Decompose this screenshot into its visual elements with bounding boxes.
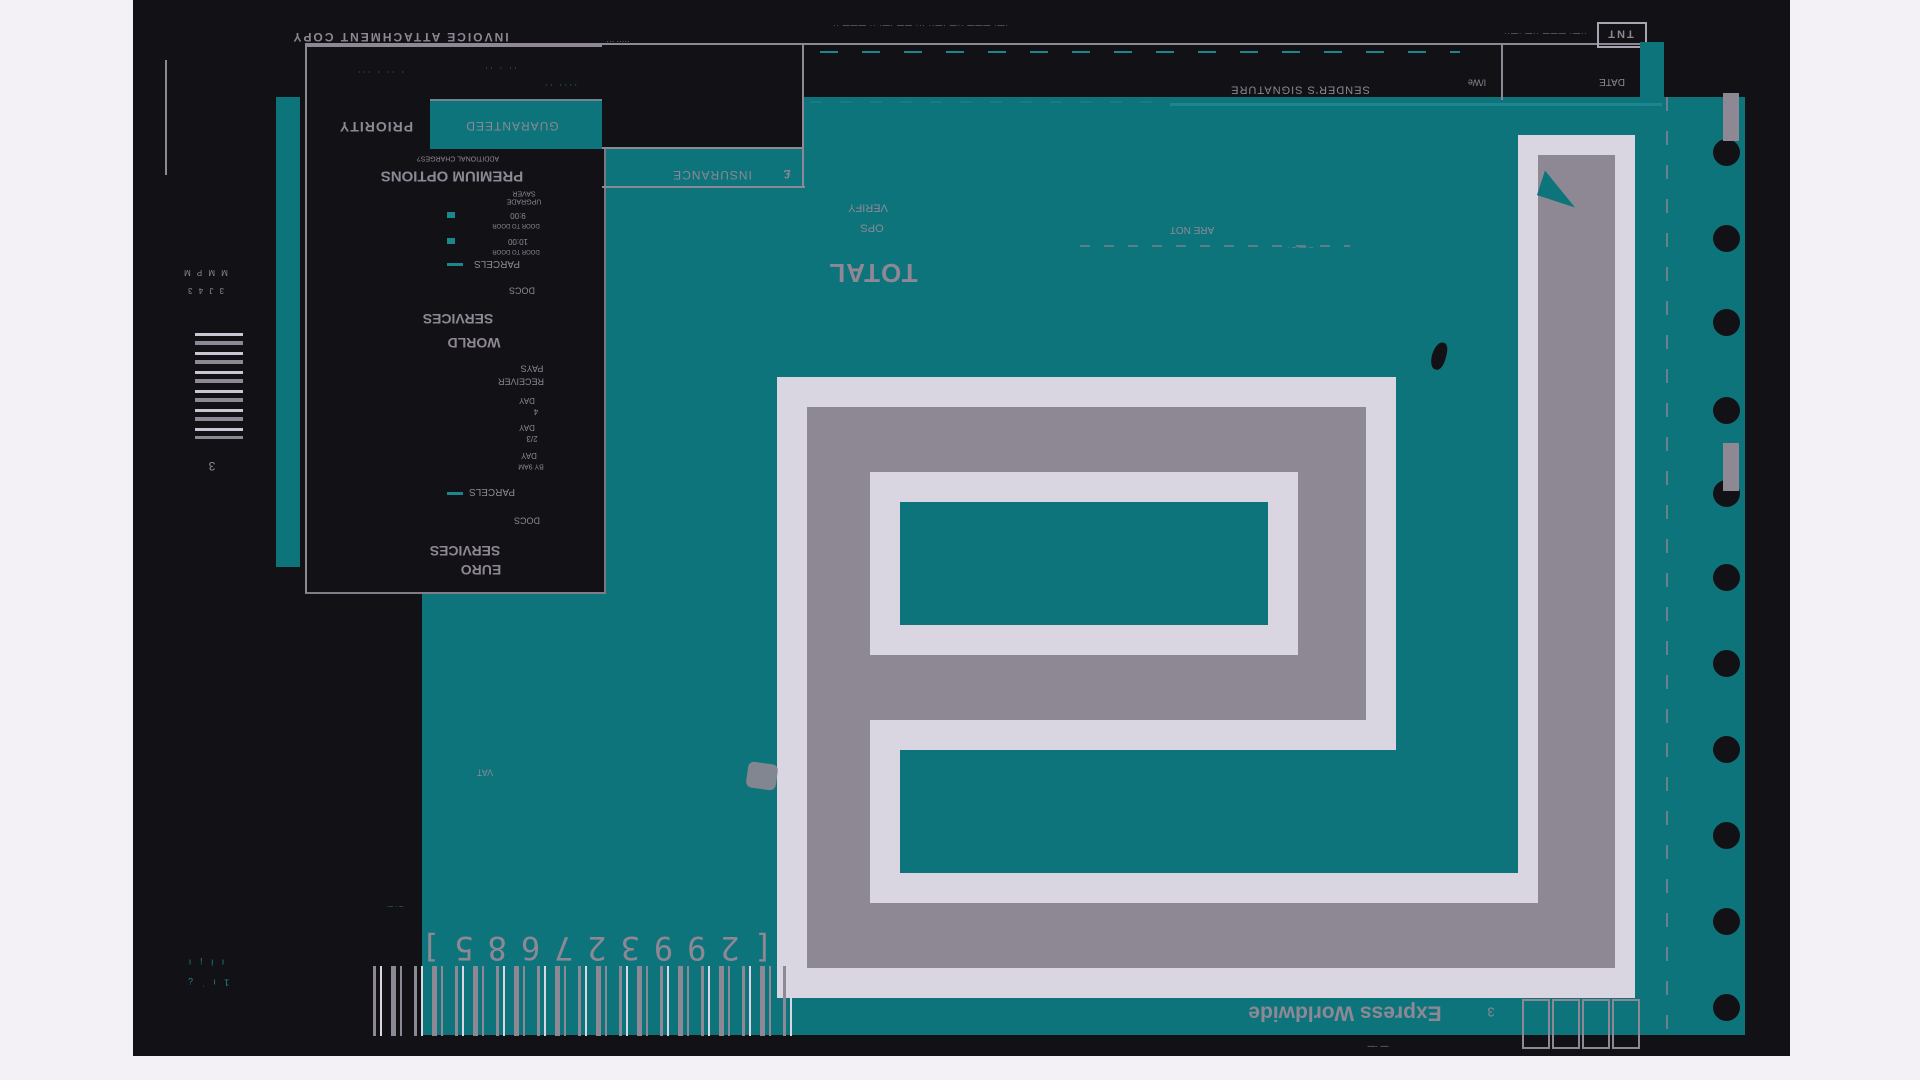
option-1000-door: DOOR TO DOOR — [492, 248, 539, 254]
legend-small-print: ····· ··· — [606, 37, 630, 45]
option-saver: SAVER — [512, 190, 535, 197]
margin-marks-row1: M M P M — [182, 268, 228, 276]
insurance-divider — [802, 45, 804, 188]
punch-hole-6 — [1713, 564, 1740, 591]
dayam-line1: BY 9AM — [518, 463, 544, 470]
watermark-top-stroke-fill — [807, 407, 1366, 472]
express-underline-marks: — ·— — [1368, 1042, 1389, 1050]
tick-mark-3 — [447, 263, 463, 266]
barcode-top-marks: – · –· — [387, 903, 403, 910]
punch-hole-3 — [1713, 309, 1740, 336]
tick-mark-1 — [447, 212, 455, 218]
dayam-line2: DAY — [521, 451, 537, 459]
are-not-small-print: – — – · — [1287, 243, 1313, 251]
header-teal-block — [1640, 42, 1664, 108]
receiver-pays-line1: RECEIVER — [498, 377, 544, 386]
world-docs-label: DOCS — [509, 286, 535, 295]
euro-parcels-label: PARCELS — [469, 486, 515, 496]
ops-verify-line1: OPS — [860, 222, 883, 233]
perforation-rule — [1666, 97, 1668, 1035]
margin-ladder-barcode — [195, 333, 243, 439]
weight-cells-row — [1520, 999, 1644, 1045]
option-1000: 10:00 — [508, 237, 528, 245]
priority-label: PRIORITY — [339, 120, 413, 134]
header-divider — [1501, 45, 1503, 100]
day4-line1: 4 — [534, 407, 538, 415]
watermark-bottom-stroke-fill — [807, 903, 1615, 968]
cell-2 — [1552, 999, 1580, 1049]
punch-hole-8 — [1713, 736, 1740, 763]
world-services-line2: SERVICES — [423, 312, 494, 326]
tick-mark-4 — [447, 492, 463, 495]
day23-line2: DAY — [519, 423, 535, 431]
cell-4 — [1612, 999, 1640, 1049]
bottom-left-marks-row2: 1 ı ˙ ¿ — [185, 978, 230, 987]
express-worldwide-label: Express Worldwide — [1248, 1003, 1441, 1024]
consignment-number: [299327685] — [407, 932, 773, 964]
are-not-label: ARE NOT — [1170, 224, 1214, 234]
insurance-box — [602, 45, 803, 149]
punch-hole-2 — [1713, 225, 1740, 252]
tnt-logo: TNT — [1606, 28, 1633, 39]
tick-mark-2 — [447, 238, 455, 244]
option-upgrade: UPGRADE — [507, 198, 542, 205]
invoice-copy-title: INVOICE ATTACHMENT COPY — [291, 31, 508, 43]
tear-mark-mid — [1723, 443, 1739, 491]
day23-line1: 2/3 — [526, 434, 537, 442]
margin-marks-row2: 3 J 4 3 — [186, 286, 224, 294]
signature-rule-dashed — [810, 101, 1160, 103]
form-edge-sliver — [276, 97, 300, 567]
guaranteed-label: GUARANTEED — [465, 120, 558, 132]
option-900: 9:00 — [510, 211, 526, 219]
box-number-3: 3 — [1487, 1006, 1494, 1019]
total-label: TOTAL — [828, 260, 917, 286]
currency-symbol: £ — [784, 168, 791, 180]
vat-label: VAT — [477, 768, 493, 777]
consignment-barcode — [373, 966, 793, 1036]
smudge-mark — [745, 761, 778, 791]
punch-hole-7 — [1713, 650, 1740, 677]
top-small-print: ·—· ——— ··— ·—·· ··· —— ·—· ·· ——— ·· — [832, 22, 1008, 29]
punch-hole-1 — [1713, 139, 1740, 166]
i-we-label: I/We — [1468, 78, 1486, 87]
cell-3 — [1582, 999, 1610, 1049]
margin-rule — [165, 60, 167, 175]
date-label: DATE — [1599, 76, 1625, 86]
option-900-door: DOOR TO DOOR — [492, 222, 539, 228]
insurance-rule — [602, 186, 805, 188]
world-parcels-label: PARCELS — [474, 258, 520, 268]
watermark-mid-stroke-fill — [807, 655, 1366, 720]
watermark-window — [906, 502, 1268, 625]
scanned-consignment-note: INVOICE ATTACHMENT COPYTNT··—· ——— ··— ·… — [0, 0, 1920, 1080]
signature-rule — [1170, 103, 1662, 106]
receiver-pays-line2: PAYS — [521, 364, 544, 373]
day4-line2: DAY — [519, 396, 535, 404]
margin-number-3: 3 — [209, 460, 216, 472]
punch-hole-10 — [1713, 908, 1740, 935]
additional-charges-label: ADDITIONAL CHARGES? — [417, 155, 499, 162]
panel-dotted-row2: ·· · ·· — [483, 64, 517, 73]
world-services-line1: WORLD — [448, 336, 501, 350]
premium-options-label: PREMIUM OPTIONS — [381, 169, 524, 184]
panel-dotted-row1: · ·· · ··· — [356, 68, 404, 77]
watermark-right-bar-fill — [1538, 155, 1615, 965]
panel-dotted-row3: ···· ·· — [543, 81, 577, 90]
punch-hole-11 — [1713, 994, 1740, 1021]
bottom-left-marks-row1: ı i ¡ ı — [186, 958, 225, 967]
tnt-small-print: ··—· ——— ··— ·—·· — [1503, 30, 1586, 37]
euro-services-line1: EURO — [461, 563, 501, 577]
cell-1 — [1522, 999, 1550, 1049]
punch-hole-4 — [1713, 397, 1740, 424]
punch-hole-9 — [1713, 822, 1740, 849]
insurance-label: INSURANCE — [672, 169, 752, 181]
tear-mark-top — [1723, 93, 1739, 141]
euro-services-line2: SERVICES — [430, 544, 501, 558]
senders-signature-label: SENDER'S SIGNATURE — [1230, 84, 1370, 95]
euro-docs-label: DOCS — [514, 516, 540, 525]
ops-verify-line2: VERIFY — [848, 202, 888, 213]
